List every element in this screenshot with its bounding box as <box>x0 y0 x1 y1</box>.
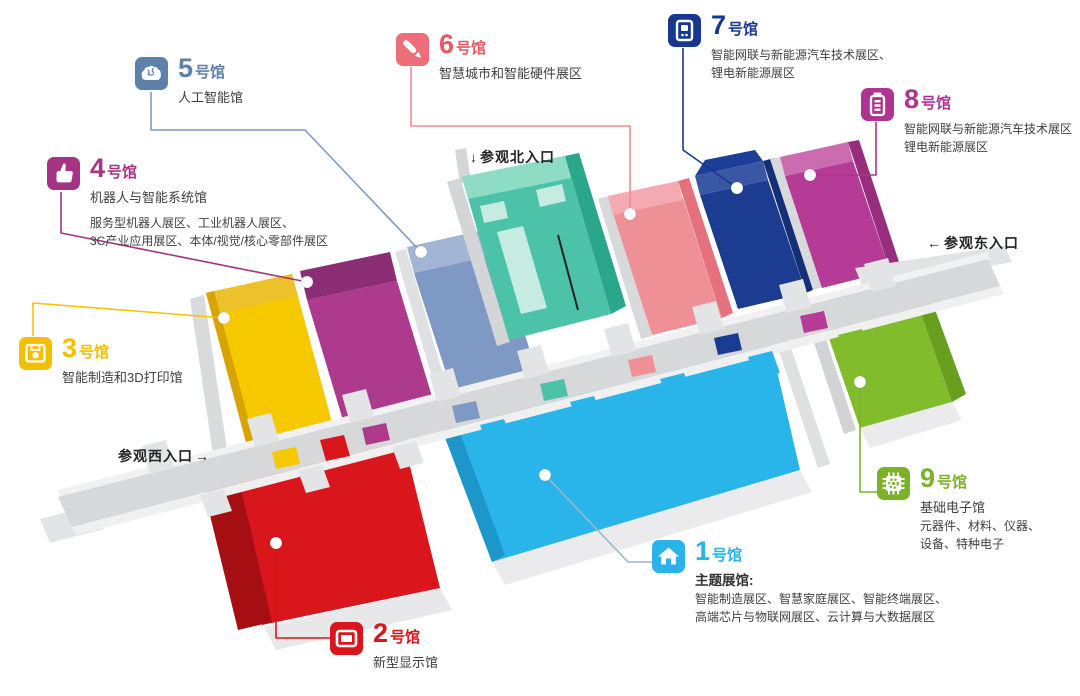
home-icon <box>652 540 685 573</box>
chip-icon <box>877 467 910 500</box>
hall-8-marker <box>804 169 816 181</box>
hall-8-label: 8 号馆 智能网联与新能源汽车技术展区 锂电新能源展区 <box>861 88 1072 156</box>
hall-3-number: 3 <box>62 335 77 362</box>
hall-1-suffix: 号馆 <box>712 548 742 563</box>
hall-9-line-2: 设备、特种电子 <box>920 535 1040 553</box>
hall-3-name: 智能制造和3D打印馆 <box>62 369 183 387</box>
hall-9-number: 9 <box>920 465 935 492</box>
hall-7-suffix: 号馆 <box>728 22 758 37</box>
hall-4-line-1: 服务型机器人展区、工业机器人展区、 <box>90 214 328 232</box>
hall-5-name: 人工智能馆 <box>178 89 243 107</box>
hall-5-suffix: 号馆 <box>195 65 225 80</box>
hall-4-name: 机器人与智能系统馆 <box>90 189 328 207</box>
hall-1-line-1: 智能制造展区、智慧家庭展区、智能终端展区、 <box>695 590 947 608</box>
hall-8-line-1: 智能网联与新能源汽车技术展区 <box>904 120 1072 138</box>
charging-station-icon <box>668 14 701 47</box>
right-arrow-icon: → <box>195 448 210 464</box>
hall-6-marker <box>624 208 636 220</box>
hall-5-label: 5 号馆 人工智能馆 <box>135 57 243 107</box>
hall-3-suffix: 号馆 <box>79 345 109 360</box>
hall-1-number: 1 <box>695 538 710 565</box>
left-arrow-icon: ← <box>927 235 942 251</box>
hall-7-marker <box>731 182 743 194</box>
hand-icon <box>47 157 80 190</box>
entrance-north-text: 参观北入口 <box>480 149 555 165</box>
entrance-east-text: 参观东入口 <box>944 235 1019 251</box>
exhibition-map: 5 号馆 人工智能馆 6 号馆 智慧城市和智能硬件展区 7 号馆 <box>0 0 1080 696</box>
hall-4-label: 4 号馆 机器人与智能系统馆 服务型机器人展区、工业机器人展区、 3C产业应用展… <box>47 157 328 250</box>
hall-7-line-2: 锂电新能源展区 <box>711 64 891 82</box>
hall-1-line-2: 高端芯片与物联网展区、云计算与大数据展区 <box>695 608 947 626</box>
pen-icon <box>396 33 429 66</box>
hall-6-suffix: 号馆 <box>456 41 486 56</box>
hall-4-marker <box>301 276 313 288</box>
hall-6-label: 6 号馆 智慧城市和智能硬件展区 <box>396 33 582 83</box>
hall-8-suffix: 号馆 <box>921 96 951 111</box>
hall-2-label: 2 号馆 新型显示馆 <box>330 622 438 672</box>
hall-2-number: 2 <box>373 620 388 647</box>
hall-3-marker <box>218 312 230 324</box>
entrance-west-label: 参观西入口→ <box>118 446 212 466</box>
hall-2-marker <box>270 537 282 549</box>
hall-9-suffix: 号馆 <box>937 475 967 490</box>
hall-8-number: 8 <box>904 86 919 113</box>
hall-9-marker <box>854 376 866 388</box>
hall-4-suffix: 号馆 <box>107 165 137 180</box>
hall-9-label: 9 号馆 基础电子馆 元器件、材料、仪器、 设备、特种电子 <box>877 467 1040 553</box>
hall-2-suffix: 号馆 <box>390 630 420 645</box>
hall-1-name: 主题展馆: <box>695 572 947 590</box>
hall-4-number: 4 <box>90 155 105 182</box>
hall-7-line-1: 智能网联与新能源汽车技术展区、 <box>711 46 891 64</box>
hall-8-line-2: 锂电新能源展区 <box>904 138 1072 156</box>
down-arrow-icon: ↓ <box>470 149 478 165</box>
hall-1-marker <box>539 469 551 481</box>
hall-9-name: 基础电子馆 <box>920 499 1040 517</box>
hall-6-name: 智慧城市和智能硬件展区 <box>439 65 582 83</box>
entrance-west-text: 参观西入口 <box>118 448 193 464</box>
hall-7-label: 7 号馆 智能网联与新能源汽车技术展区、 锂电新能源展区 <box>668 14 891 82</box>
hall-7-number: 7 <box>711 12 726 39</box>
hall-6-number: 6 <box>439 31 454 58</box>
printer-3d-icon <box>19 337 52 370</box>
brain-icon <box>135 57 168 90</box>
battery-icon <box>861 88 894 121</box>
hall-1-label: 1 号馆 主题展馆: 智能制造展区、智慧家庭展区、智能终端展区、 高端芯片与物联… <box>652 540 947 626</box>
hall-4-line-2: 3C产业应用展区、本体/视觉/核心零部件展区 <box>90 232 328 250</box>
display-icon <box>330 622 363 655</box>
hall-9-line-1: 元器件、材料、仪器、 <box>920 517 1040 535</box>
hall-5-number: 5 <box>178 55 193 82</box>
hall-2-name: 新型显示馆 <box>373 654 438 672</box>
hall-5-marker <box>415 246 427 258</box>
entrance-north-label: ↓参观北入口 <box>468 147 555 167</box>
entrance-east-label: ←参观东入口 <box>925 233 1019 253</box>
hall-3-label: 3 号馆 智能制造和3D打印馆 <box>19 337 183 387</box>
